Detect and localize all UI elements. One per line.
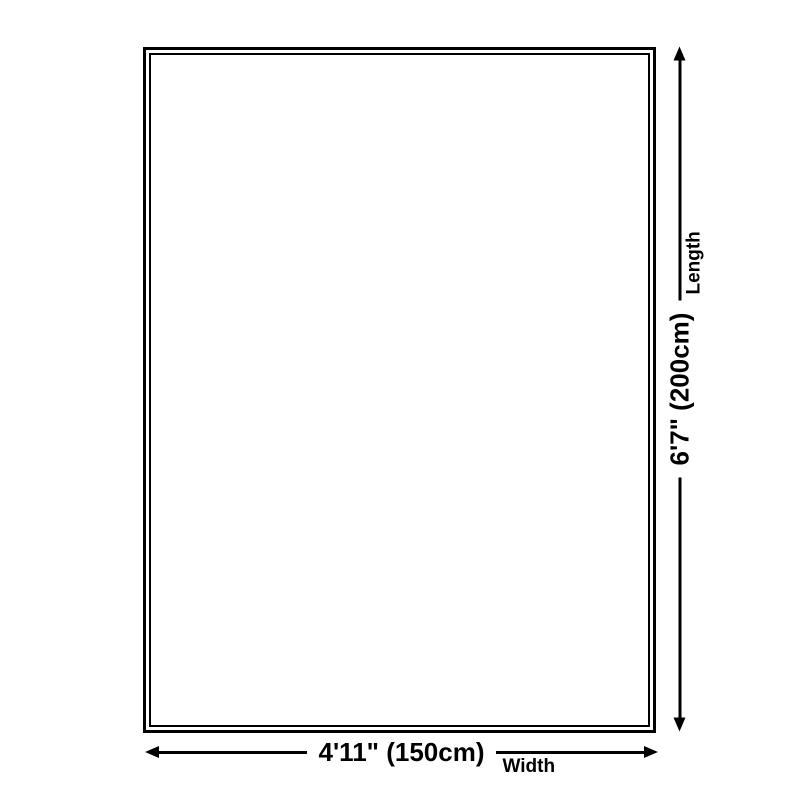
arrow-left-icon [145, 746, 159, 758]
length-dimension: 6'7" (200cm) Length [665, 47, 695, 732]
width-dimension-line-left [159, 751, 307, 754]
width-value: 4'11" (150cm) [319, 737, 485, 767]
width-dimension-line-right: Width [496, 751, 644, 754]
arrow-right-icon [644, 746, 658, 758]
product-outline-outer [143, 47, 656, 733]
product-outline-inner [149, 53, 650, 727]
arrow-up-icon [674, 47, 686, 61]
arrow-down-icon [674, 718, 686, 732]
width-dimension: 4'11" (150cm) Width [145, 737, 658, 767]
length-label: Length [684, 231, 704, 294]
length-dimension-line-lower [678, 477, 681, 717]
length-dimension-line-upper: Length [678, 61, 681, 301]
dimension-diagram: 6'7" (200cm) Length 4'11" (150cm) Width [0, 0, 800, 800]
length-value: 6'7" (200cm) [665, 313, 695, 466]
width-label: Width [502, 757, 555, 777]
